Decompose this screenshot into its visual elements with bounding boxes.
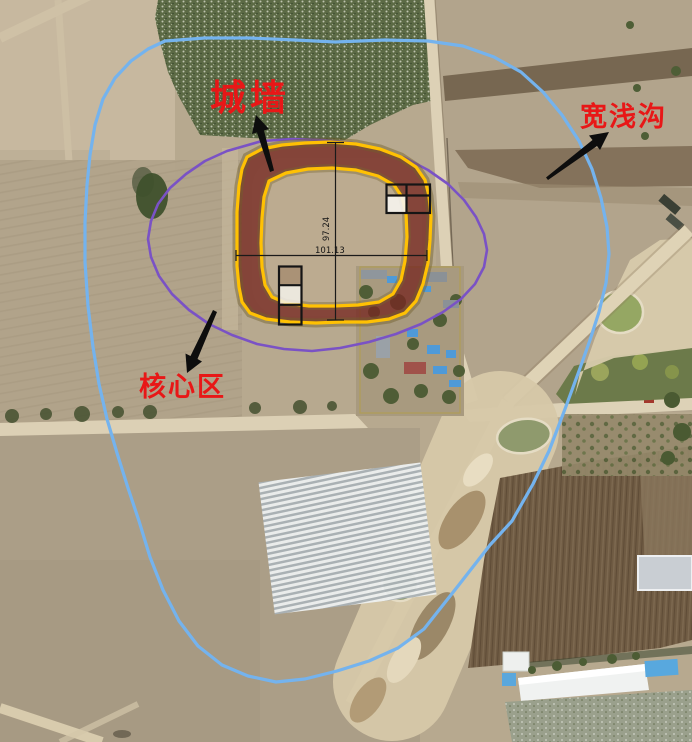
dimension-label-width: 101.13: [315, 246, 345, 256]
label-core-area: 核心区: [139, 374, 226, 401]
label-city-wall: 城墙: [210, 81, 290, 117]
label-wide-shallow-ditch: 宽浅沟: [580, 104, 667, 131]
warehouse: [638, 556, 692, 590]
mulch-field: [259, 462, 437, 614]
dimension-label-height: 97.24: [322, 210, 332, 248]
aerial-site-map: 城墙 宽浅沟 核心区 97.24 101.13: [0, 0, 692, 742]
